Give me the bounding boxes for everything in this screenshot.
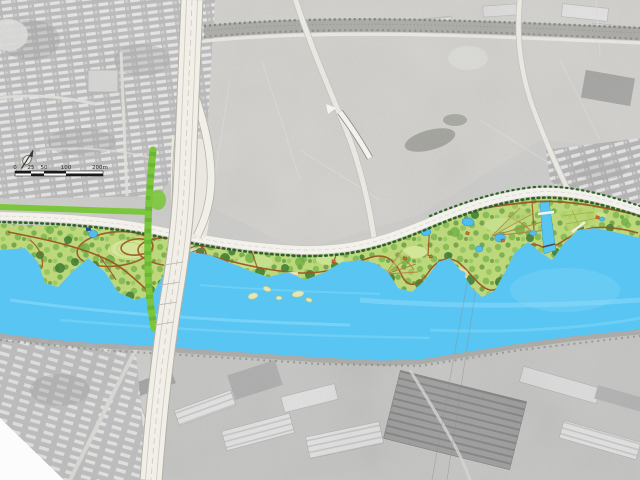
masterplan-map: 0 25 50 100 200m xyxy=(0,0,640,480)
scale-bar: 0 25 50 100 200m xyxy=(13,165,108,176)
scale-label-50: 50 xyxy=(41,165,48,171)
scale-label-0: 0 xyxy=(13,165,17,171)
scale-label-200m: 200m xyxy=(92,165,108,171)
scale-label-100: 100 xyxy=(61,165,72,171)
map-canvas: 0 25 50 100 200m xyxy=(0,0,640,480)
scale-label-25: 25 xyxy=(28,165,35,171)
